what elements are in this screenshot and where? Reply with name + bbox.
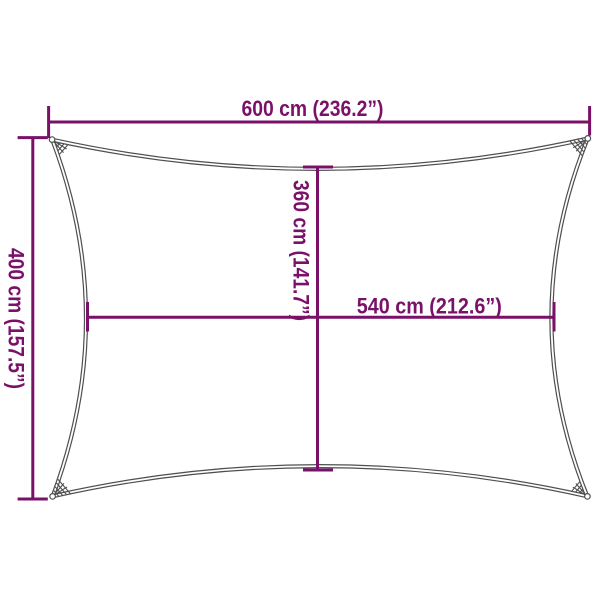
svg-text:360 cm (141.7”): 360 cm (141.7”) bbox=[289, 180, 314, 321]
svg-text:400 cm (157.5”): 400 cm (157.5”) bbox=[4, 248, 29, 389]
svg-text:600 cm (236.2”): 600 cm (236.2”) bbox=[242, 96, 384, 121]
svg-text:540 cm (212.6”): 540 cm (212.6”) bbox=[357, 293, 502, 318]
